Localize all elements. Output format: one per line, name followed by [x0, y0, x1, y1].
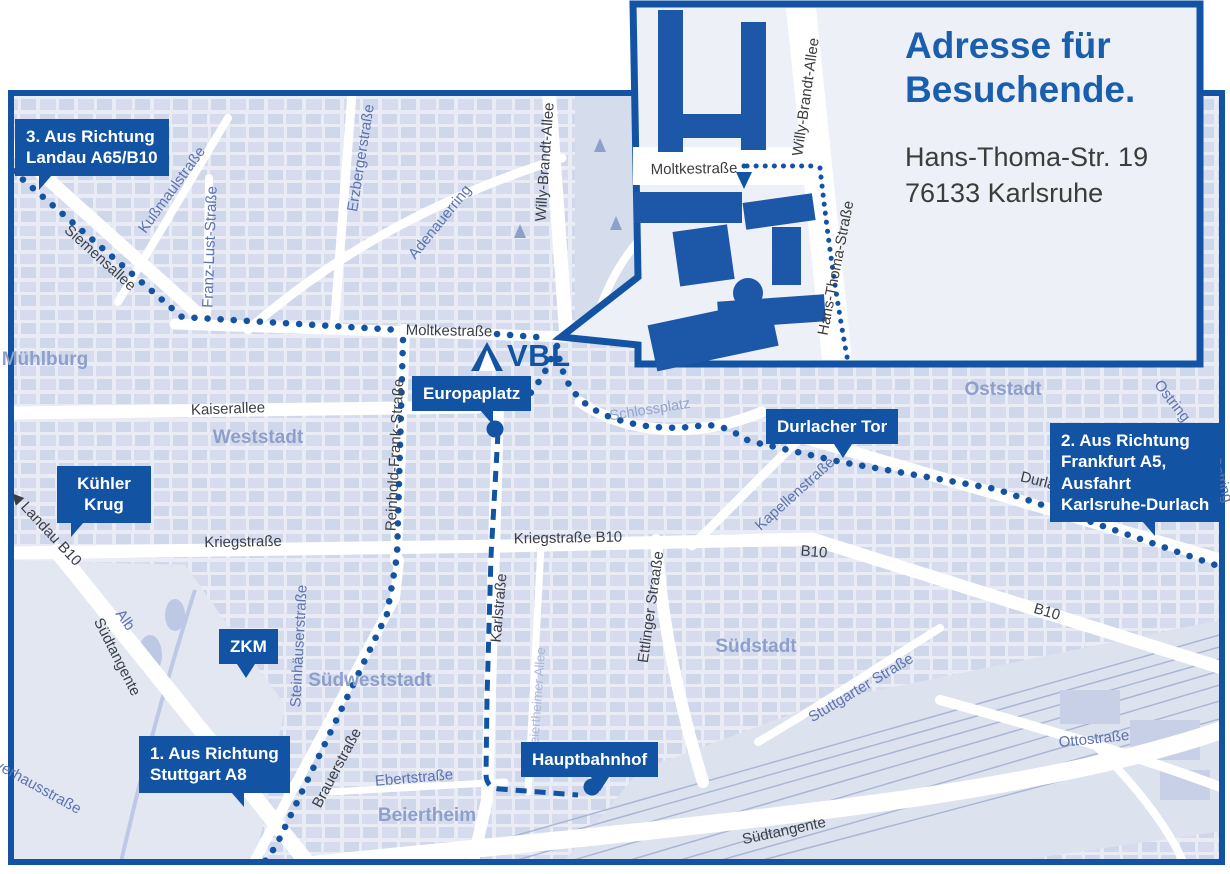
inset-title-line2: Besuchende. — [905, 68, 1135, 112]
badge-durlacher-tor-label: Durlacher Tor — [777, 416, 887, 437]
badge-route-1-pointer — [231, 792, 244, 807]
inset-address-line2: 76133 Karlsruhe — [905, 176, 1148, 212]
lbl-muehlburg: Mühlburg — [2, 349, 89, 371]
badge-route-2-label: Ausfahrt — [1061, 473, 1209, 494]
inset-address: Hans-Thoma-Str. 19 76133 Karlsruhe — [905, 140, 1148, 211]
badge-route-3-pointer — [39, 175, 52, 190]
badge-hauptbahnhof-pointer — [591, 777, 609, 791]
inset-title-line1: Adresse für — [905, 24, 1135, 68]
badge-zkm: ZKM — [219, 629, 278, 664]
badge-route-2: 2. Aus RichtungFrankfurt A5,AusfahrtKarl… — [1050, 423, 1220, 522]
badge-europaplatz-pointer — [480, 410, 493, 425]
badge-route-1-label: 1. Aus Richtung — [150, 743, 279, 764]
badge-route-3-label: 3. Aus Richtung — [26, 126, 158, 147]
badge-route-2-label: Karlsruhe-Durlach — [1061, 494, 1209, 515]
vbl-triangle-icon — [470, 341, 504, 372]
badge-route-1: 1. Aus RichtungStuttgart A8 — [139, 736, 290, 793]
badge-europaplatz-label: Europaplatz — [423, 383, 520, 404]
badge-route-2-label: 2. Aus Richtung — [1061, 430, 1209, 451]
badge-durlacher-tor: Durlacher Tor — [766, 409, 898, 444]
vbl-visitor-map: VBL Adresse für Besuchende. Hans-Thoma-S… — [0, 0, 1230, 874]
badge-route-3-label: Landau A65/B10 — [26, 147, 158, 168]
lbl-kaiserallee: Kaiserallee — [191, 399, 266, 419]
lbl-weststadt: Weststadt — [213, 427, 303, 449]
badge-kuehler-krug-pointer — [71, 522, 84, 537]
badge-route-1-label: Stuttgart A8 — [150, 764, 279, 785]
badge-route-2-pointer — [1142, 521, 1155, 536]
lbl-suedweststadt: Südweststadt — [308, 670, 432, 692]
badge-route-3: 3. Aus RichtungLandau A65/B10 — [15, 119, 169, 176]
badge-durlacher-tor-pointer — [834, 444, 852, 458]
badge-kuehler-krug-label: Kühler — [68, 473, 140, 494]
vbl-logo-text: VBL — [507, 338, 571, 374]
badge-kuehler-krug: KühlerKrug — [57, 466, 151, 523]
lbl-beiertheim: Beiertheim — [378, 805, 476, 827]
badge-kuehler-krug-label: Krug — [68, 494, 140, 515]
lbl-kriegstrasse-b10: Kriegstraße B10 — [514, 529, 623, 548]
badge-hauptbahnhof: Hauptbahnhof — [521, 742, 658, 777]
lbl-oststadt: Oststadt — [964, 379, 1041, 401]
lbl-kriegstrasse: Kriegstraße — [204, 533, 282, 551]
badge-zkm-label: ZKM — [230, 636, 267, 657]
lbl-suedstadt: Südstadt — [715, 636, 796, 658]
inset-address-line1: Hans-Thoma-Str. 19 — [905, 140, 1148, 176]
badge-hauptbahnhof-label: Hauptbahnhof — [532, 749, 647, 770]
lbl-inset-moltkestrasse: Moltkestraße — [651, 160, 738, 179]
lbl-b10-mid: B10 — [800, 542, 828, 561]
vbl-logo: VBL — [470, 338, 571, 374]
badge-zkm-pointer — [237, 664, 255, 678]
badge-route-2-label: Frankfurt A5, — [1061, 451, 1209, 472]
inset-title: Adresse für Besuchende. — [905, 24, 1135, 111]
badge-europaplatz: Europaplatz — [412, 376, 531, 411]
